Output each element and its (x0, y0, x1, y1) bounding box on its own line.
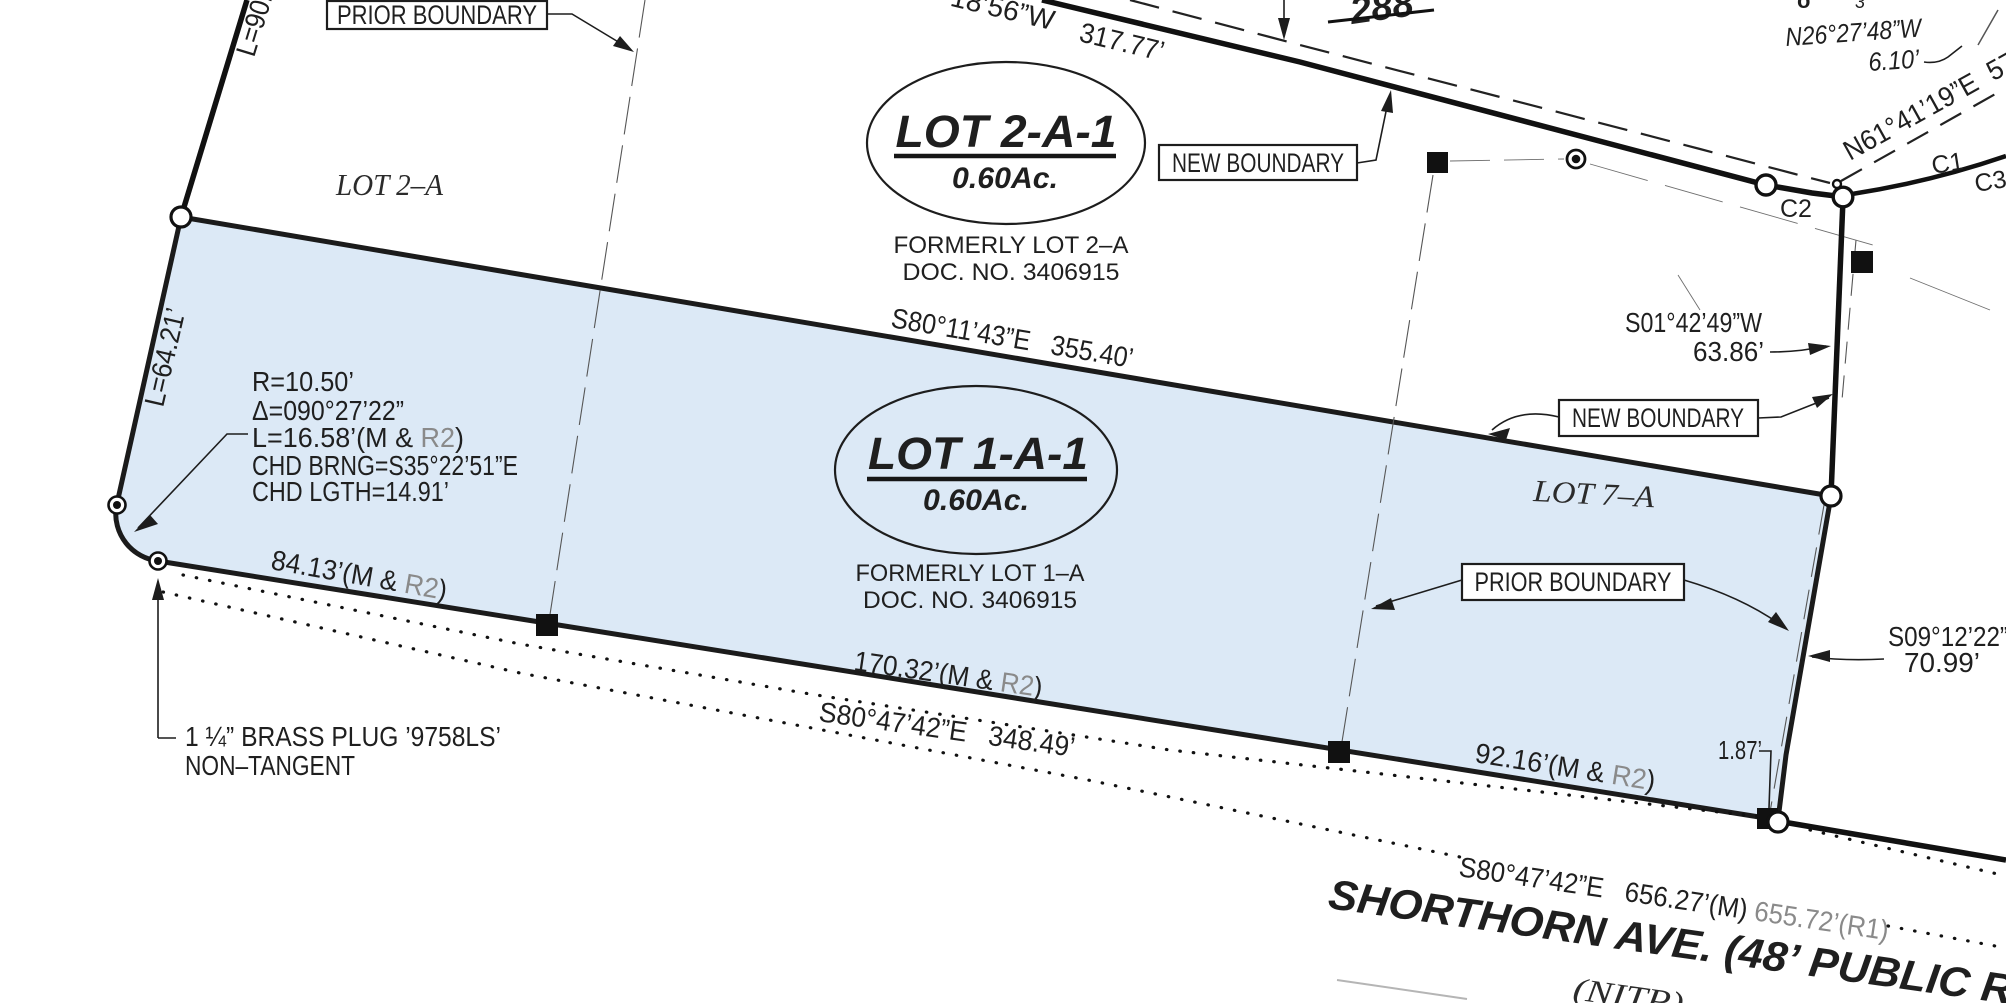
svg-text:DOC. NO. 3406915: DOC. NO. 3406915 (903, 259, 1120, 286)
svg-text:C2: C2 (1780, 195, 1812, 223)
svg-text:70.99’: 70.99’ (1904, 647, 1980, 678)
svg-text:6.10’: 6.10’ (1867, 43, 1921, 77)
svg-text:L=16.58’(M & R2): L=16.58’(M & R2) (252, 422, 464, 453)
svg-text:NON–TANGENT: NON–TANGENT (185, 750, 355, 781)
svg-text:CHD LGTH=14.91’: CHD LGTH=14.91’ (252, 476, 449, 507)
svg-text:LOT 2–A: LOT 2–A (335, 167, 444, 202)
svg-text:LOT 1-A-1: LOT 1-A-1 (868, 428, 1088, 479)
svg-text:PRIOR BOUNDARY: PRIOR BOUNDARY (337, 0, 537, 30)
svg-text:FORMERLY LOT 2–A: FORMERLY LOT 2–A (894, 232, 1129, 259)
svg-text:DOC. NO. 3406915: DOC. NO. 3406915 (863, 587, 1077, 614)
svg-text:LOT 7–A: LOT 7–A (1532, 473, 1657, 514)
svg-text:0.60Ac.: 0.60Ac. (952, 162, 1058, 195)
svg-text:FORMERLY LOT 1–A: FORMERLY LOT 1–A (856, 560, 1085, 587)
svg-text:NEW BOUNDARY: NEW BOUNDARY (1572, 403, 1744, 433)
svg-text:S01°42’49”W: S01°42’49”W (1625, 307, 1762, 338)
svg-text:PRIOR BOUNDARY: PRIOR BOUNDARY (1475, 567, 1672, 597)
svg-text:1.87’: 1.87’ (1718, 735, 1762, 765)
svg-text:C3: C3 (1973, 165, 2006, 198)
svg-text:C1: C1 (1930, 147, 1966, 180)
svg-text:LOT 2-A-1: LOT 2-A-1 (896, 106, 1117, 157)
svg-text:o: o (1797, 0, 1810, 13)
svg-text:3°: 3° (1855, 0, 1872, 12)
svg-text:63.86’: 63.86’ (1693, 336, 1764, 367)
svg-text:1 ¼” BRASS PLUG ’9758LS’: 1 ¼” BRASS PLUG ’9758LS’ (185, 721, 501, 752)
svg-text:NEW BOUNDARY: NEW BOUNDARY (1172, 148, 1344, 178)
svg-text:0.60Ac.: 0.60Ac. (923, 484, 1029, 517)
svg-text:R=10.50’: R=10.50’ (252, 366, 354, 397)
